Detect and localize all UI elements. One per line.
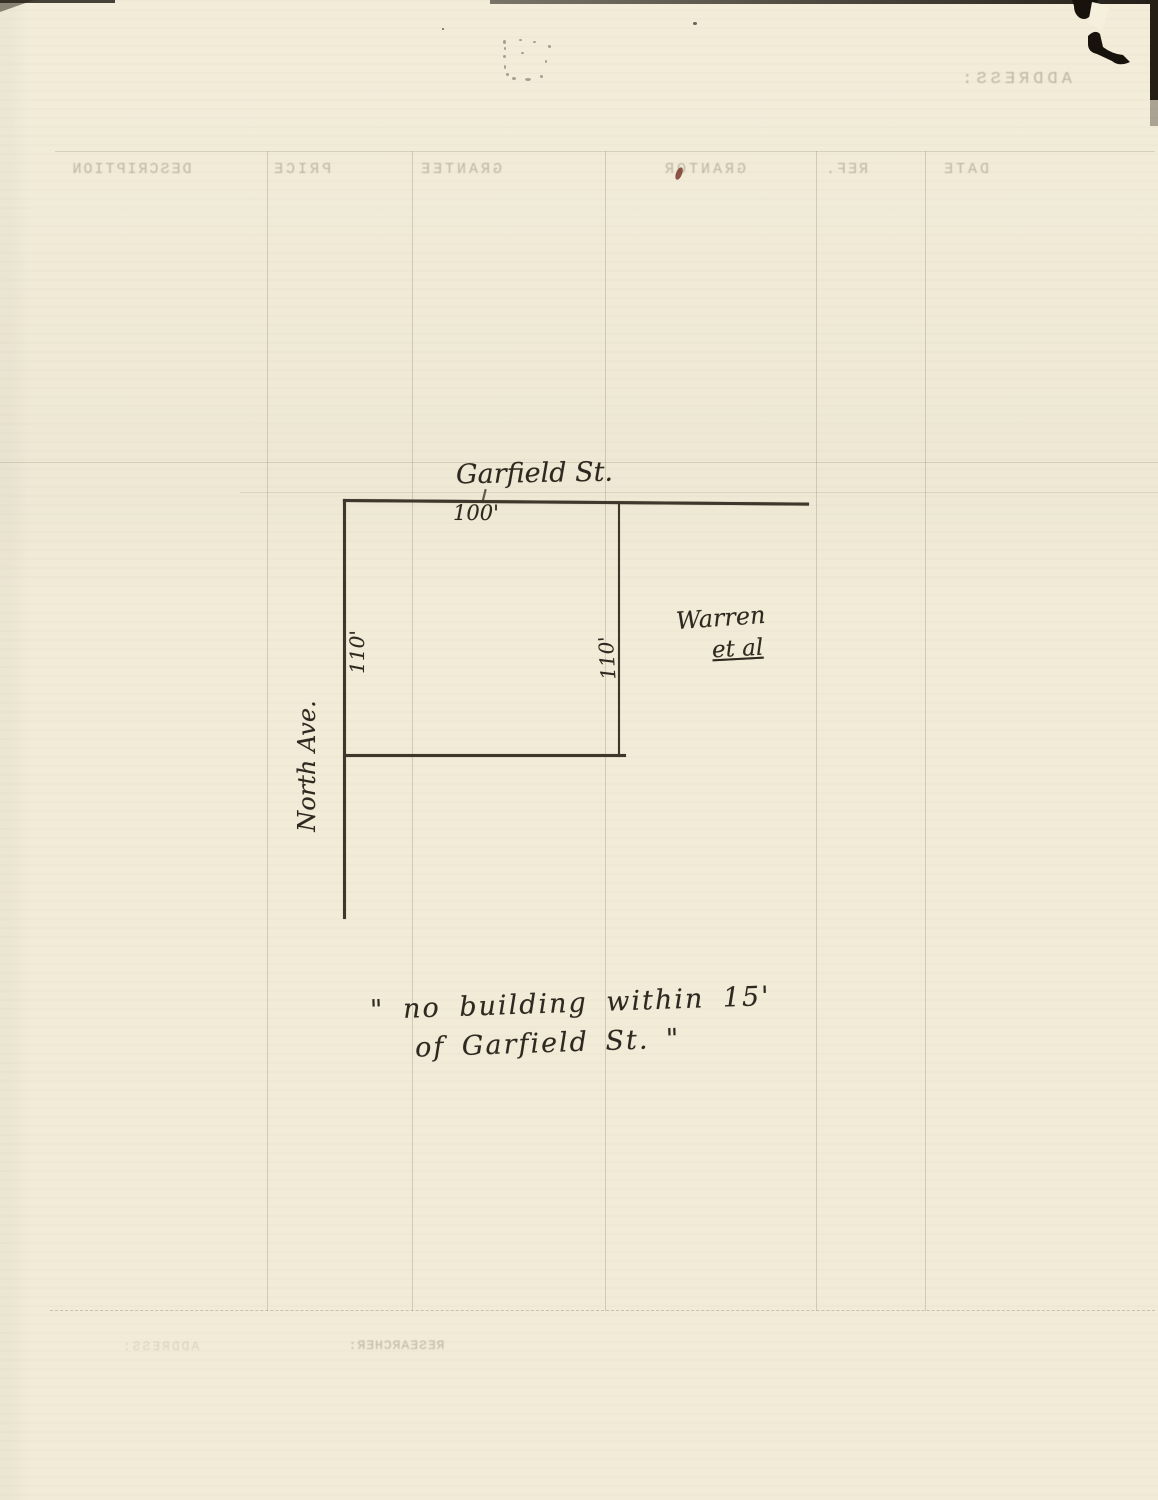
ink-speck [693,22,697,25]
table-column-line [267,151,268,1311]
faded-stamp-marks [495,35,555,85]
plot-right-boundary-line [618,503,620,757]
table-column-line [605,151,606,1311]
owner-name: Warren [675,601,766,635]
restriction-note-line2: of Garfield St. " [415,1023,681,1063]
ghost-header-grantee: GRANTEE [400,161,520,178]
ink-speck [442,28,444,30]
right-depth-dimension: 110' [593,627,621,689]
left-depth-dimension: 110' [345,622,369,682]
ghost-header-date: DATE [925,161,1005,178]
top-width-dimension: 100' [453,501,499,525]
ghost-address-bottom-label: ADDRESS: [85,1339,235,1354]
ghost-researcher-label: RESEARCHER: [330,1338,462,1353]
restriction-note-line1: " no building within 15' [370,981,772,1026]
torn-corner-ink-marks [1036,0,1158,130]
table-bottom-border [50,1310,1155,1311]
table-column-line [925,151,926,1311]
plot-bottom-boundary-line [344,754,626,757]
ghost-header-grantor: GRANTOR [644,161,764,178]
ghost-header-description: DESCRIPTION [56,161,206,178]
plot-left-boundary-line [343,499,346,919]
street-name-top: Garfield St. [456,457,614,491]
owner-suffix: et al [711,635,764,664]
ghost-rule-line [240,492,1158,493]
corner-fold-top-left [0,0,34,12]
table-column-line [816,151,817,1311]
ghost-header-price: PRICE [251,161,351,178]
ghost-header-ref: REF. [814,161,878,178]
table-column-line [412,151,413,1311]
scanned-card: ADDRESS: DESCRIPTION PRICE GRANTEE GRANT… [0,0,1158,1500]
street-name-left: North Ave. [293,686,321,846]
